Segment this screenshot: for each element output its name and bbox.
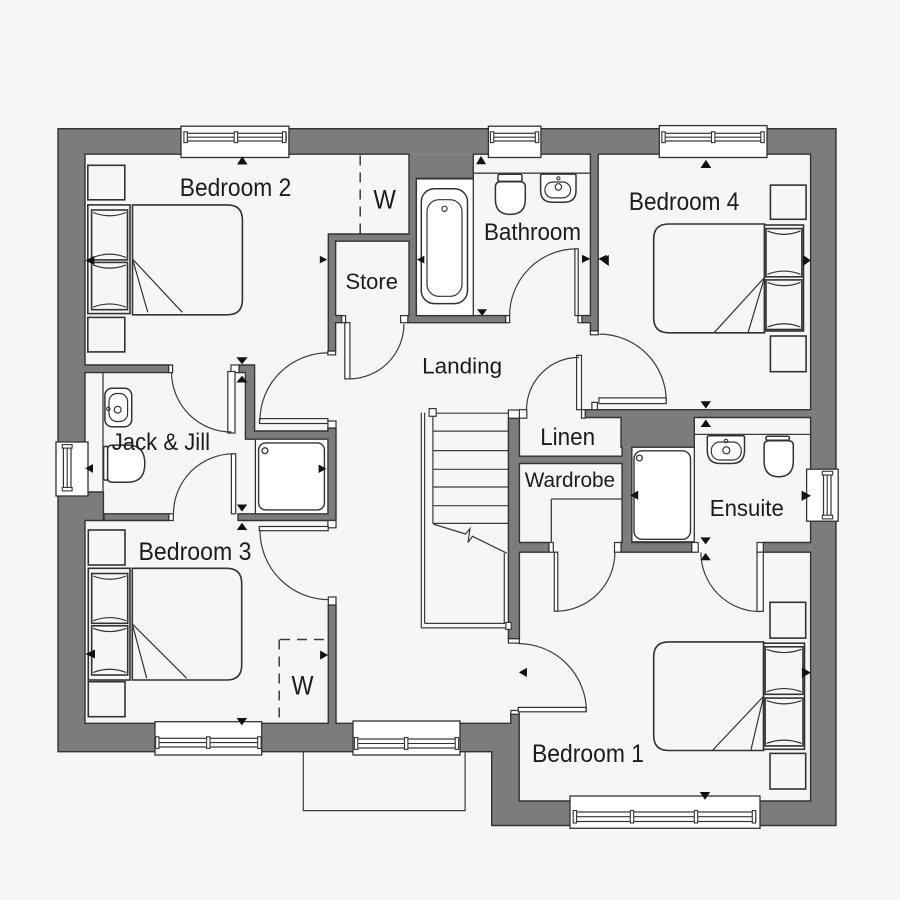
svg-text:W: W (373, 184, 396, 214)
svg-text:Landing: Landing (422, 354, 502, 379)
svg-text:Linen: Linen (540, 424, 595, 451)
svg-text:Store: Store (345, 269, 398, 294)
svg-text:Bedroom 1: Bedroom 1 (532, 741, 644, 768)
svg-text:W: W (292, 671, 314, 701)
svg-text:Ensuite: Ensuite (710, 495, 784, 521)
svg-text:Bathroom: Bathroom (484, 219, 581, 246)
svg-text:Bedroom 4: Bedroom 4 (629, 189, 740, 216)
svg-text:Jack & Jill: Jack & Jill (112, 429, 210, 456)
svg-text:Bedroom 3: Bedroom 3 (139, 539, 252, 566)
svg-text:Wardrobe: Wardrobe (525, 467, 615, 492)
svg-text:Bedroom 2: Bedroom 2 (180, 175, 292, 202)
